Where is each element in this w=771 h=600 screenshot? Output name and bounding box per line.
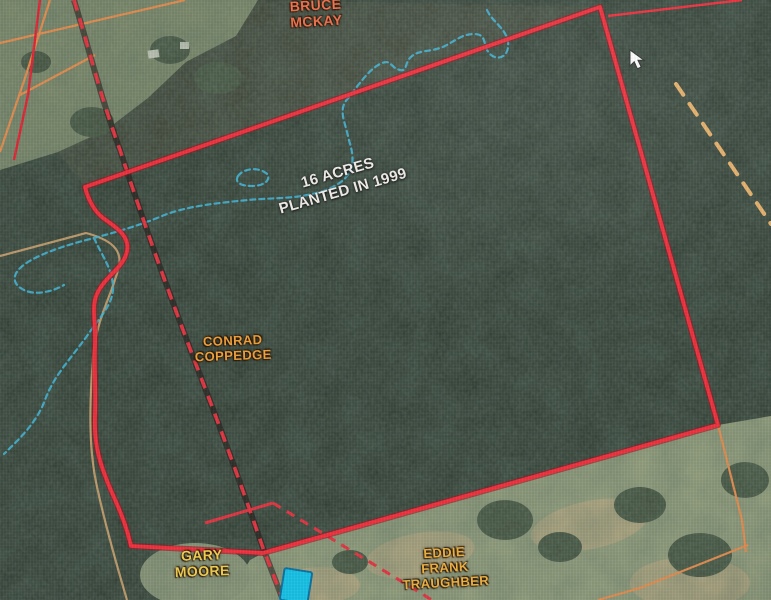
aerial-map-svg [0, 0, 771, 600]
owner-label-conrad-coppedge: CONRAD COPPEDGE [178, 332, 289, 365]
highlighted-structure [280, 568, 313, 600]
owner-label-eddie-frank-traughber: EDDIE FRANK TRAUGHBER [379, 543, 511, 594]
owner-label-gary-moore: GARY MOORE [151, 546, 252, 581]
map-canvas[interactable]: BRUCE MCKAY 16 ACRES PLANTED IN 1999 CON… [0, 0, 771, 600]
